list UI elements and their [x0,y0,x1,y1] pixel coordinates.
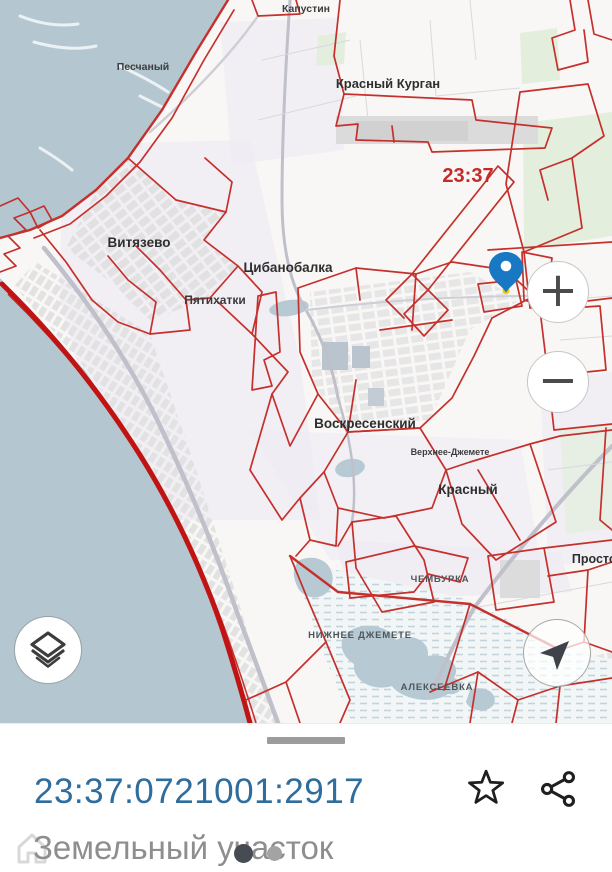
star-icon [465,767,507,809]
zoom-in-button[interactable]: + [527,261,589,323]
page-dot-2 [267,846,282,861]
minus-icon: − [538,356,578,404]
map-place-label-alekseevka: АЛЕКСЕЕВКА [401,682,474,693]
region-code-label: 23:37 [442,165,493,187]
bottom-sheet: 23:37:0721001:2917 Земельный участок [0,723,612,872]
map-place-label-peschany: Песчаный [117,61,170,73]
map-place-label-prostor: Простор [572,552,612,566]
share-button[interactable] [536,767,580,811]
favorite-button[interactable] [464,766,508,810]
map-place-label-krasny: Красный [438,482,497,497]
map-place-label-chemburka: ЧЕМБУРКА [411,574,470,585]
app-screen: КапустинПесчаныйКрасный КурганВитязевоЦи… [0,0,612,872]
page-indicator-dots [234,844,296,863]
layers-icon [26,628,70,672]
map-place-label-vityazevo: Витязево [108,235,171,250]
layers-button[interactable] [14,616,82,684]
map-canvas[interactable]: КапустинПесчаныйКрасный КурганВитязевоЦи… [0,0,612,723]
map-place-label-nizhnee-dzhemete: НИЖНЕЕ ДЖЕМЕТЕ [308,630,412,641]
map-place-label-tsibanobalka: Цибанобалка [243,260,333,275]
plus-icon: + [538,266,578,314]
map-place-label-voskresensky: Воскресенский [314,416,416,431]
map-place-label-kapustin: Капустин [282,3,330,15]
compass-button[interactable] [523,619,591,687]
map-container: КапустинПесчаныйКрасный КурганВитязевоЦи… [0,0,612,723]
page-dot-1 [234,844,253,863]
zoom-out-button[interactable]: − [527,351,589,413]
drag-handle[interactable] [267,737,345,744]
map-place-label-pyatikhatki: Пятихатки [184,293,246,307]
map-place-label-verkhnee-dzhemete: Верхнее-Джемете [411,447,490,457]
pin-hole [501,261,512,272]
share-icon [538,769,578,809]
compass-arrow-icon [535,631,579,675]
map-place-label-krasny-kurgan: Красный Курган [336,76,440,91]
cadastral-number-link[interactable]: 23:37:0721001:2917 [34,774,364,810]
